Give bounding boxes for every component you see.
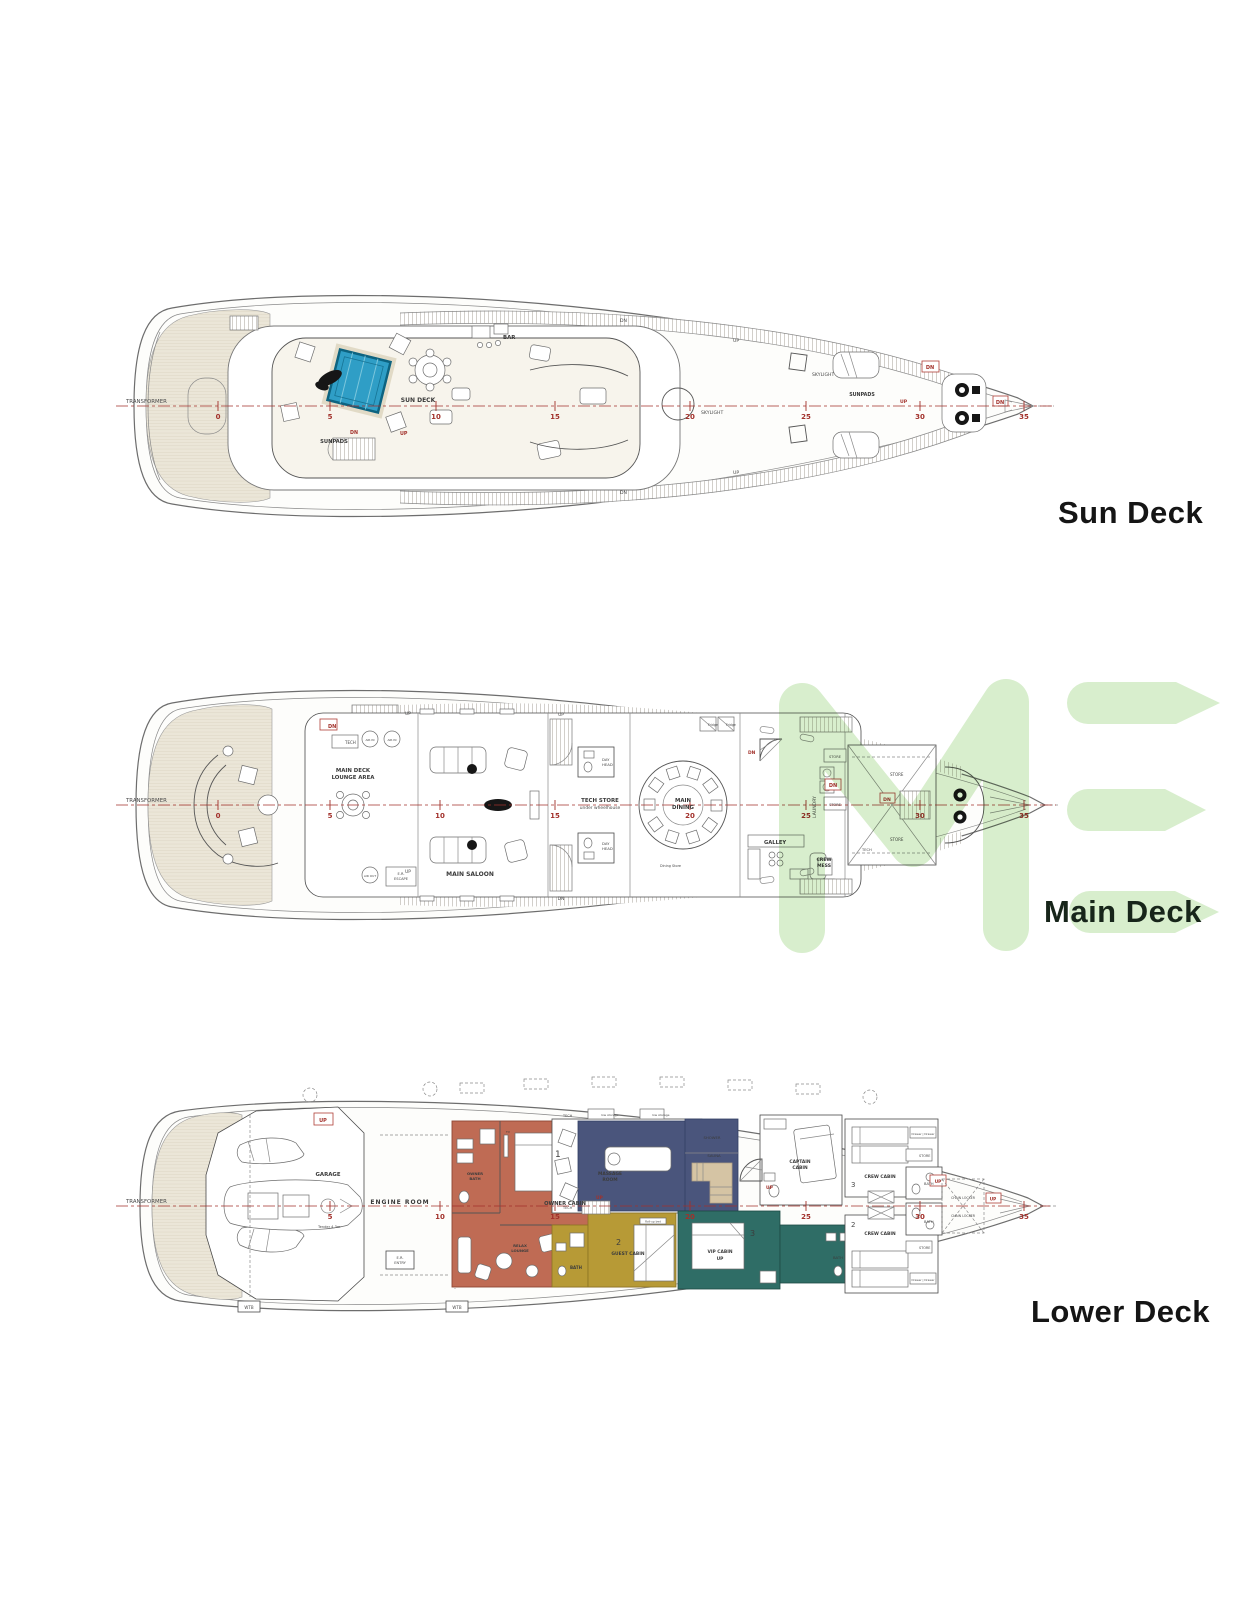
dn-marker: DN [926, 365, 934, 371]
up-marker: UP [405, 869, 411, 875]
overhead-hatches [303, 1077, 877, 1104]
up-marker: UP [400, 431, 408, 437]
stairs-up-fwd [550, 719, 572, 765]
skylight-label-mid: SKYLIGHT [701, 410, 723, 416]
er-escape-label: ESCAPE [394, 877, 409, 881]
vip-bath-label: BATH [833, 1255, 843, 1260]
up-marker: UP [733, 338, 739, 344]
guest-stair [582, 1201, 610, 1214]
watermark-e-bar-mid [1067, 789, 1206, 831]
dn-marker: DN [829, 783, 837, 789]
engine-room-label: ENGINE ROOM [370, 1199, 429, 1206]
tech-label: TECH [344, 740, 356, 745]
transformer-label: TRANSFORMER [125, 1199, 167, 1205]
tech-store-sub: under wheelhouse [580, 805, 621, 811]
fridge-label: Fridge [708, 723, 718, 727]
tech-label: TECH [861, 848, 872, 852]
svg-text:15: 15 [550, 1213, 560, 1221]
dn-marker: DN [748, 750, 756, 756]
crew-cabin-number: 3 [851, 1181, 855, 1189]
sun-deck-plan: TRANSFORMER SUN DECK SUNPADS BAR SKYLIGH… [100, 292, 1060, 527]
lower-deck-plan: TRANSFORMER UP GARAGE Tender 4,3m ENGINE… [100, 1075, 1060, 1325]
svg-text:10: 10 [435, 1213, 445, 1221]
chain-locker-label: CHAIN LOCKER [951, 1196, 976, 1200]
lounge-label: LOUNGE AREA [332, 775, 376, 781]
tech-label: TECH [562, 1114, 573, 1118]
low-storage-label: low storage [601, 1113, 619, 1117]
captain-cabin-label: CAPTAIN [789, 1159, 811, 1165]
sun-deck-label: Sun Deck [1058, 495, 1203, 531]
drawer-label: Drawer | Drawer [911, 1132, 935, 1136]
yacht-deck-plans-page: { "page": { "background": "#ffffff" }, "… [0, 0, 1250, 1619]
svg-text:35: 35 [1019, 413, 1029, 421]
tender-label: Tender 4,3m [317, 1225, 341, 1229]
svg-text:15: 15 [550, 812, 560, 820]
spa-area [552, 1109, 738, 1213]
dn-marker: DN [620, 318, 627, 324]
dn-marker: DN [883, 797, 891, 803]
store-label: STORE [919, 1246, 930, 1250]
svg-text:5: 5 [328, 812, 333, 820]
garage [206, 1107, 364, 1301]
jetski-top [237, 1138, 304, 1164]
stairs-dn-aft [550, 845, 572, 891]
svg-text:0: 0 [216, 812, 221, 820]
owner-cabin-number: 1 [555, 1150, 561, 1160]
roll-up-bed-label: Roll-up bed [645, 1220, 661, 1224]
bar-label: BAR [503, 335, 516, 341]
store-label: STORE [829, 803, 842, 807]
relax-lounge-label: LOUNGE [511, 1248, 529, 1253]
er-escape-label: E.R. [398, 872, 405, 876]
air-in-label: AIR IN [387, 738, 396, 742]
svg-text:25: 25 [801, 812, 811, 820]
er-entry-label: ENTRY [394, 1261, 406, 1265]
air-in-label: AIR IN [365, 738, 374, 742]
up-marker: UP [405, 711, 411, 717]
svg-text:10: 10 [431, 413, 441, 421]
main-dining-label: DINING [672, 805, 695, 811]
guest-cabin-number: 2 [616, 1238, 621, 1247]
relax-sofa [458, 1237, 471, 1273]
captain-cabin-label: CABIN [792, 1165, 808, 1171]
fridge-label: Fridge [726, 723, 736, 727]
svg-text:0: 0 [216, 413, 221, 421]
owner-tv [504, 1135, 508, 1157]
wtb-label: WTB [244, 1305, 253, 1310]
massage-room-label: ROOM [602, 1177, 617, 1183]
dn-marker: DN [350, 430, 358, 436]
er-entry-label: E.R. [397, 1256, 404, 1260]
svg-text:35: 35 [1019, 812, 1029, 820]
bath-label: BATH [924, 1220, 934, 1224]
bath-label: BATH [924, 1182, 934, 1186]
sauna-label: SAUNA [707, 1153, 721, 1158]
bar-counter [472, 326, 490, 338]
vip-up-label: UP [717, 1256, 725, 1262]
up-marker: UP [558, 712, 564, 718]
crew-stair-top [800, 717, 852, 732]
shower-label: SHOWER [703, 1135, 720, 1140]
main-deck-label: Main Deck [1044, 894, 1202, 930]
crew-mess-label: CREW [816, 857, 831, 863]
store-label: STORE [890, 837, 904, 842]
sunpads-fwd-label: SUNPADS [849, 392, 875, 398]
tech-label: TECH [562, 1206, 573, 1210]
up-marker: UP [733, 470, 739, 476]
skylight-label-fwd: SKYLIGHT [812, 372, 834, 378]
store-label: STORE [829, 755, 842, 759]
day-head-label: HEAD [602, 846, 613, 851]
store-label: STORE [919, 1154, 930, 1158]
low-storage-label: low storage [652, 1113, 670, 1117]
svg-text:30: 30 [915, 812, 925, 820]
svg-text:20: 20 [685, 413, 695, 421]
vip-cabin-label: VIP CABIN [707, 1249, 732, 1255]
up-marker: UP [596, 1195, 604, 1201]
main-deck-plan: TRANSFORMER DN TECH AIR IN AIR IN AIR OU… [100, 655, 1060, 925]
dn-marker: DN [328, 724, 336, 730]
crew-stair-bottom [800, 879, 852, 894]
svg-text:25: 25 [801, 413, 811, 421]
guest-bath-label: BATH [570, 1265, 582, 1270]
up-marker: UP [935, 1179, 941, 1184]
galley-label: GALLEY [764, 840, 786, 846]
crew-cabin-label: CREW CABIN [864, 1174, 896, 1180]
dn-marker: DN [620, 490, 627, 496]
lower-deck-label: Lower Deck [1031, 1294, 1210, 1330]
dn-marker: DN [996, 400, 1004, 406]
up-marker: UP [900, 399, 908, 405]
tech-store-label: TECH STORE [581, 798, 619, 804]
drawer-label: Drawer | Drawer [911, 1278, 935, 1282]
sun-aft-side-stair [230, 316, 258, 330]
transformer-label: TRANSFORMER [125, 399, 167, 405]
svg-text:20: 20 [685, 812, 695, 820]
guest-cabin-label: GUEST CABIN [611, 1251, 644, 1257]
svg-text:20: 20 [685, 1213, 695, 1221]
air-out-label: AIR OUT [364, 874, 377, 878]
captain-bed [793, 1125, 836, 1183]
svg-text:30: 30 [915, 413, 925, 421]
vip-cabin-number: 3 [750, 1229, 755, 1238]
svg-text:10: 10 [435, 812, 445, 820]
sunpads-aft-label: SUNPADS [320, 439, 348, 445]
main-dining-label: MAIN [675, 798, 692, 804]
laundry-label: LAUNDRY [812, 796, 818, 818]
store-label: STORE [890, 772, 904, 777]
svg-text:25: 25 [801, 1213, 811, 1221]
er-entry-box [386, 1251, 414, 1269]
crew-mess-label: MESS [817, 863, 831, 869]
watermark-e-bar-top [1067, 682, 1220, 724]
svg-text:35: 35 [1019, 1213, 1029, 1221]
svg-text:30: 30 [915, 1213, 925, 1221]
wtb-label: WTB [452, 1305, 461, 1310]
owner-bath-label: BATH [469, 1176, 480, 1181]
garage-label: GARAGE [315, 1172, 340, 1178]
svg-text:15: 15 [550, 413, 560, 421]
up-marker: UP [766, 1185, 774, 1191]
up-marker: UP [319, 1118, 327, 1124]
crew-cabin-label: CREW CABIN [864, 1231, 896, 1237]
dn-marker: DN [558, 896, 565, 902]
up-marker: UP [990, 1197, 996, 1202]
day-head-label: HEAD [602, 762, 613, 767]
svg-text:5: 5 [328, 413, 333, 421]
chain-locker-label: CHAIN LOCKER [951, 1214, 976, 1218]
sun-deck-room-label: SUN DECK [401, 397, 436, 404]
massage-room-label: MASSAGE [598, 1171, 622, 1177]
transformer-label: TRANSFORMER [125, 798, 167, 804]
main-saloon-label: MAIN SALOON [446, 871, 494, 878]
lounge-label: MAIN DECK [336, 768, 371, 774]
crew-cabin-number: 2 [851, 1221, 855, 1229]
dining-store-label: Dining Store [660, 864, 681, 868]
svg-text:5: 5 [328, 1213, 333, 1221]
